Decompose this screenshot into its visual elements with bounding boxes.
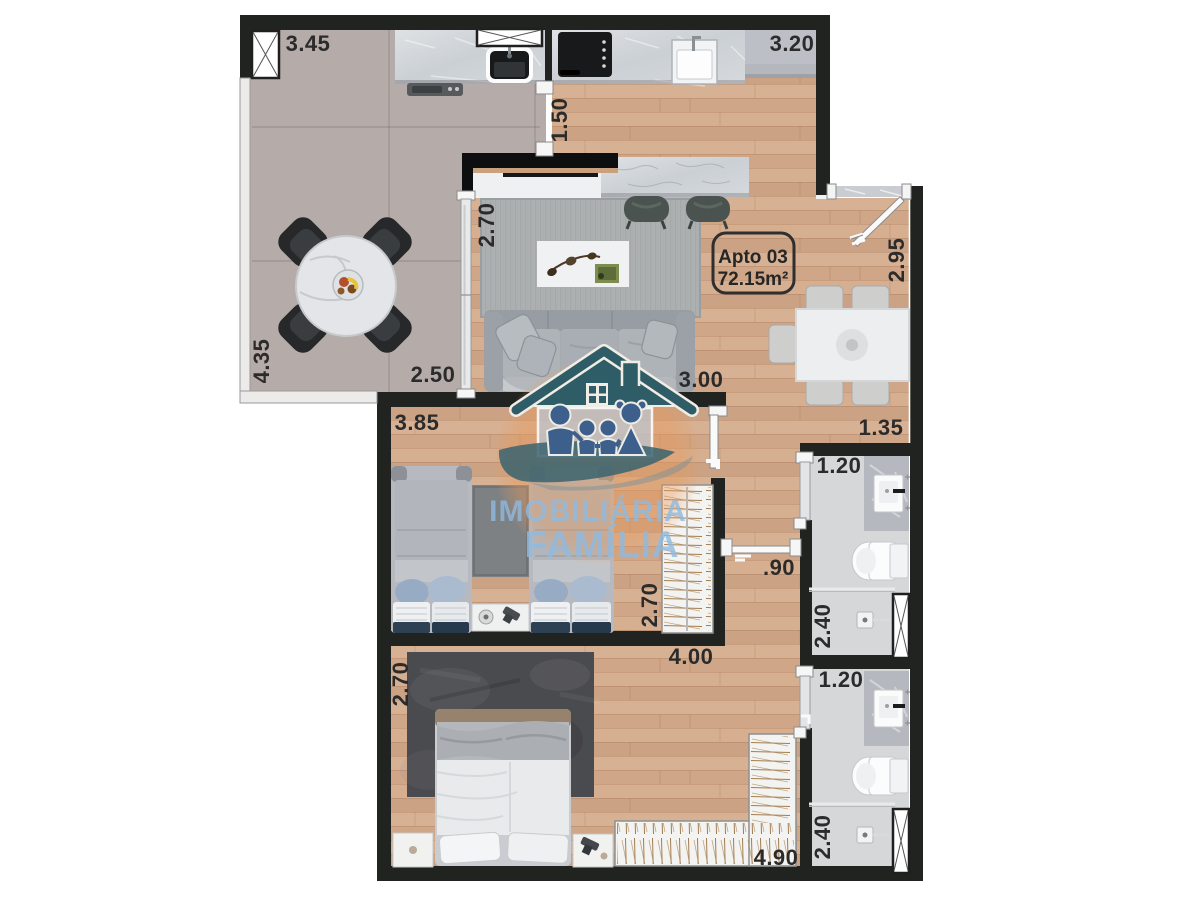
svg-text:2.70: 2.70: [388, 662, 413, 707]
svg-text:3.85: 3.85: [395, 410, 440, 435]
svg-text:1.20: 1.20: [819, 667, 864, 692]
svg-text:2.70: 2.70: [637, 583, 662, 628]
svg-text:72.15m²: 72.15m²: [718, 269, 789, 290]
svg-text:IMOBILIÁRIA: IMOBILIÁRIA: [489, 494, 687, 528]
svg-text:2.40: 2.40: [810, 815, 835, 860]
svg-text:1.50: 1.50: [547, 98, 572, 143]
svg-text:2.40: 2.40: [810, 604, 835, 649]
svg-text:2.95: 2.95: [884, 238, 909, 283]
svg-text:2.50: 2.50: [411, 362, 456, 387]
svg-text:4.00: 4.00: [669, 644, 714, 669]
svg-text:4.35: 4.35: [249, 339, 274, 384]
svg-text:Apto 03: Apto 03: [718, 247, 788, 268]
svg-text:1.35: 1.35: [859, 415, 904, 440]
svg-text:4.90: 4.90: [754, 845, 799, 870]
svg-text:.90: .90: [763, 555, 795, 580]
svg-text:3.00: 3.00: [679, 367, 724, 392]
svg-text:FAMÍLIA: FAMÍLIA: [525, 524, 680, 565]
svg-text:2.70: 2.70: [474, 203, 499, 248]
svg-text:3.45: 3.45: [286, 31, 331, 56]
svg-text:3.20: 3.20: [770, 31, 815, 56]
svg-text:1.20: 1.20: [817, 453, 862, 478]
